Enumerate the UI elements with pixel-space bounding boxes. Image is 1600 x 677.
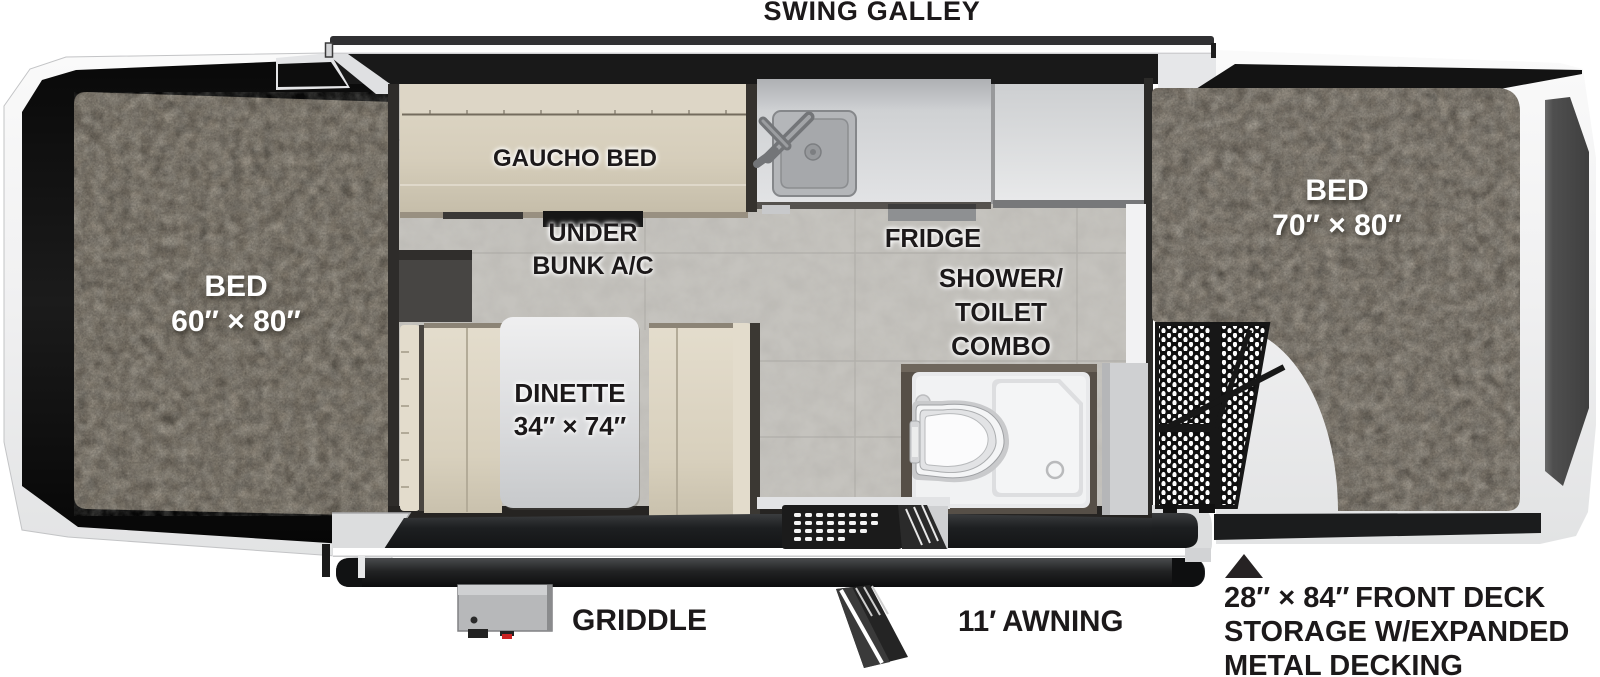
svg-text:FRIDGE: FRIDGE [885, 225, 981, 253]
svg-text:GAUCHO BED: GAUCHO BED [493, 145, 657, 172]
svg-text:11′ AWNING: 11′ AWNING [958, 605, 1123, 638]
svg-text:BED: BED [204, 270, 267, 303]
svg-text:70″ × 80″: 70″ × 80″ [1272, 209, 1402, 242]
svg-text:STORAGE W/EXPANDED: STORAGE W/EXPANDED [1224, 616, 1569, 648]
svg-text:28″ × 84″ FRONT DECK: 28″ × 84″ FRONT DECK [1224, 582, 1545, 614]
svg-text:SWING GALLEY: SWING GALLEY [764, 0, 981, 26]
svg-text:UNDER: UNDER [549, 219, 638, 247]
svg-text:GRIDDLE: GRIDDLE [572, 604, 707, 637]
svg-text:SHOWER/: SHOWER/ [939, 263, 1063, 293]
svg-text:BED: BED [1305, 174, 1368, 207]
svg-text:60″ × 80″: 60″ × 80″ [171, 305, 301, 338]
svg-text:COMBO: COMBO [951, 331, 1051, 361]
svg-text:TOILET: TOILET [955, 297, 1047, 327]
svg-text:DINETTE: DINETTE [514, 378, 625, 408]
svg-text:BUNK A/C: BUNK A/C [532, 252, 653, 280]
svg-text:34″ × 74″: 34″ × 74″ [514, 411, 626, 441]
svg-text:METAL DECKING: METAL DECKING [1224, 650, 1463, 677]
